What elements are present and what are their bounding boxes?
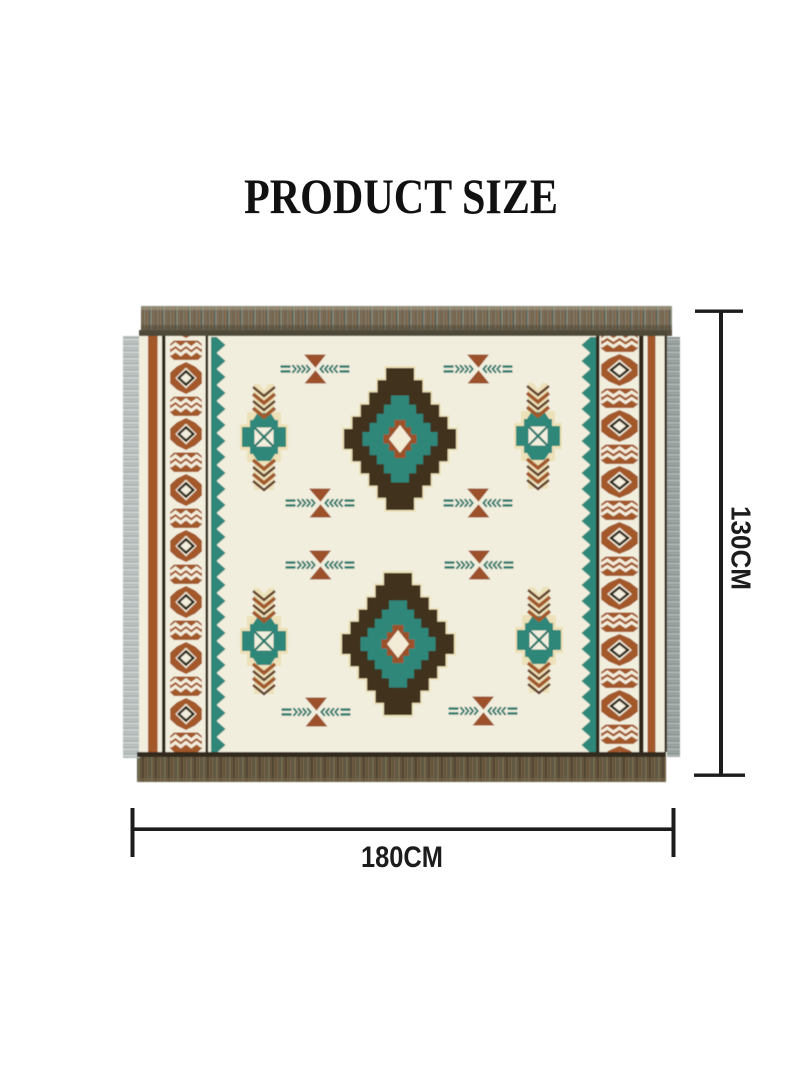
svg-text:180CM: 180CM: [361, 841, 443, 874]
svg-text:PRODUCT SIZE: PRODUCT SIZE: [244, 168, 558, 224]
svg-text:130CM: 130CM: [726, 506, 757, 590]
